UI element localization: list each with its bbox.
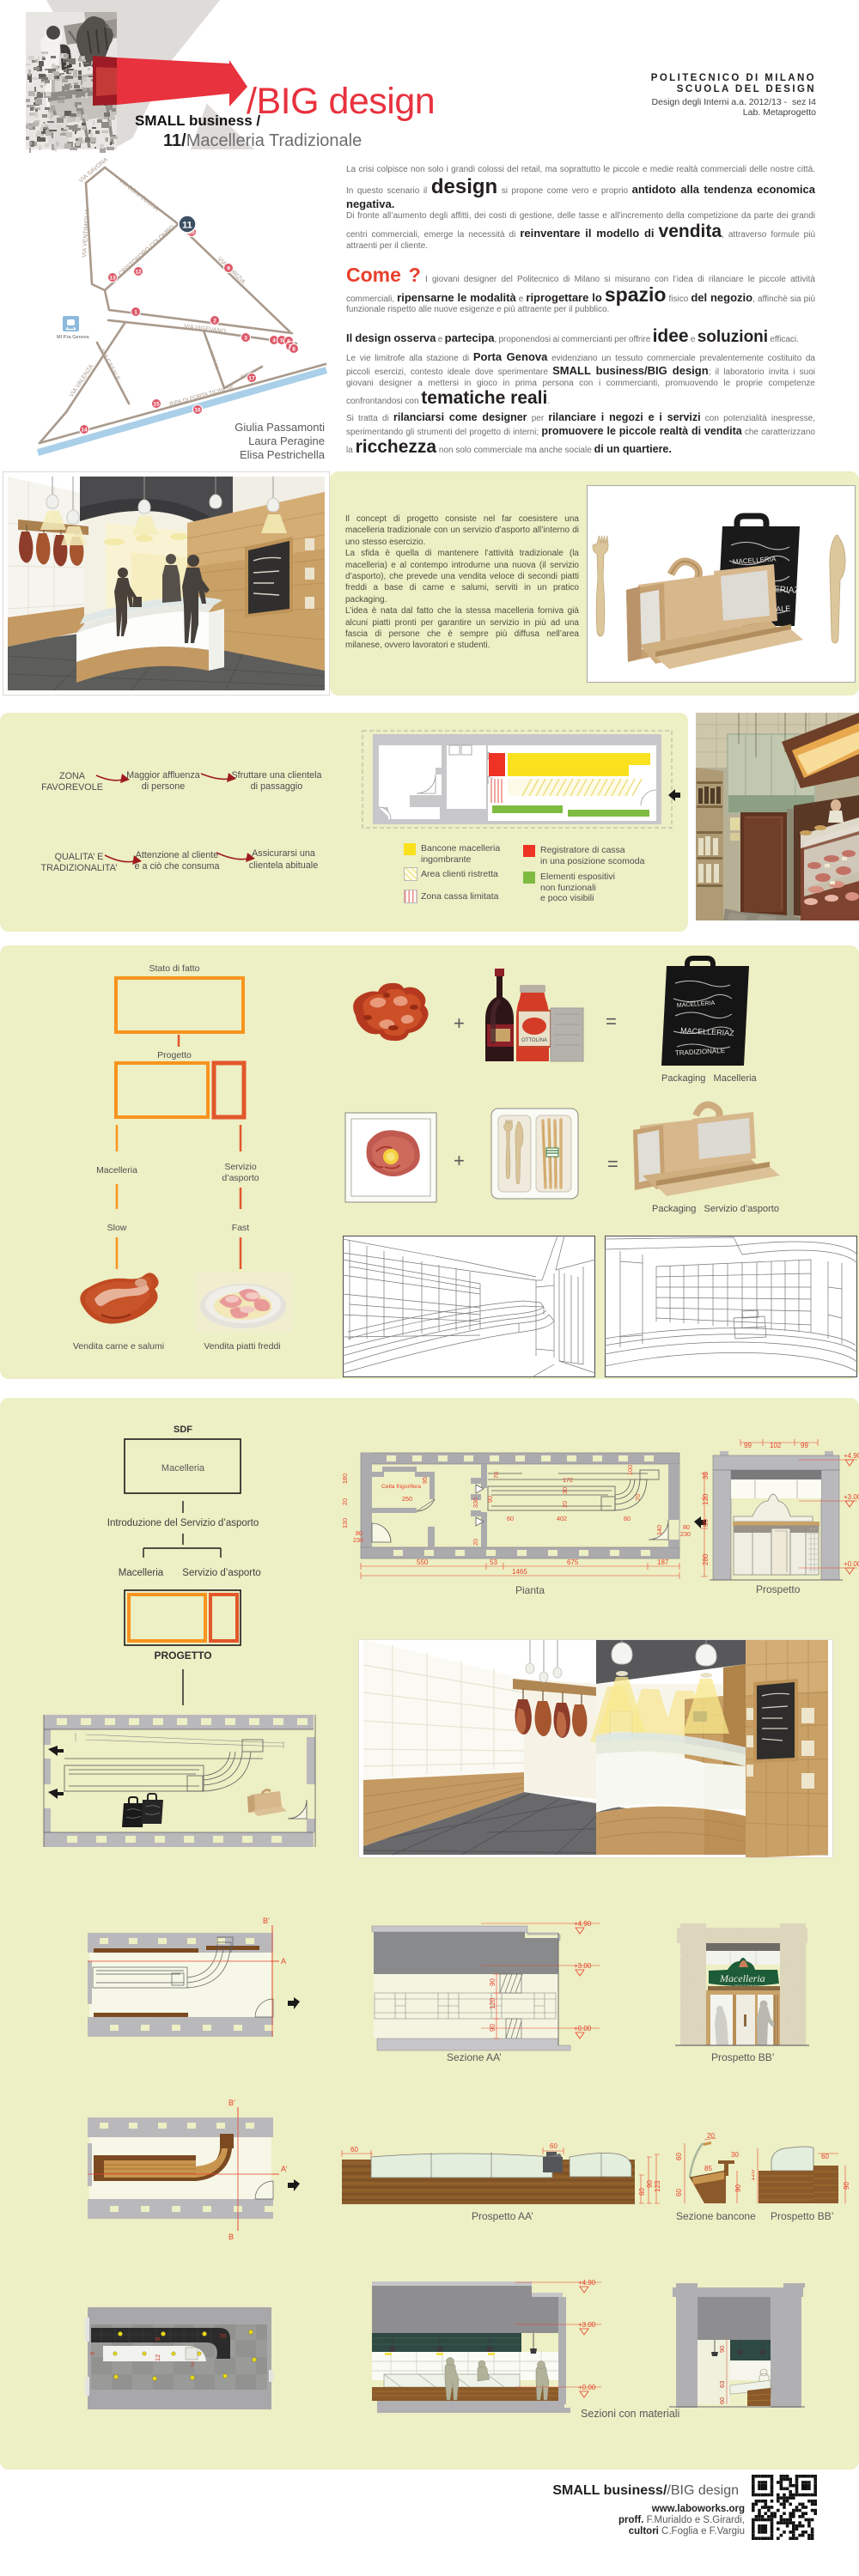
svg-text:PROGETTO: PROGETTO (154, 1649, 211, 1662)
svg-text:di persone: di persone (142, 781, 185, 792)
svg-text:30: 30 (731, 2151, 739, 2159)
svg-text:60: 60 (507, 1515, 514, 1522)
svg-text:100: 100 (626, 1465, 634, 1475)
svg-text:90: 90 (489, 2024, 497, 2032)
svg-text:B: B (228, 2233, 234, 2239)
svg-text:Prospetto: Prospetto (756, 1583, 801, 1595)
svg-text:A: A (281, 1957, 286, 1965)
svg-text:330: 330 (472, 1498, 479, 1508)
svg-text:+4.90: +4.90 (844, 1452, 859, 1460)
svg-text:120: 120 (752, 2169, 756, 2181)
svg-text:2: 2 (213, 319, 216, 325)
svg-text:16: 16 (194, 408, 201, 414)
svg-text:+3.00: +3.00 (578, 2321, 596, 2329)
svg-text:Sfruttare una clientela: Sfruttare una clientela (231, 770, 321, 781)
svg-text:Packaging Servizio d’asporto: Packaging Servizio d’asporto (652, 1204, 779, 1214)
svg-text:120: 120 (489, 1997, 497, 2009)
svg-text:60: 60 (718, 2397, 726, 2404)
svg-text:140: 140 (655, 1525, 663, 1535)
svg-text:=: = (606, 1011, 617, 1032)
svg-text:clientela abituale: clientela abituale (249, 860, 318, 871)
svg-text:120: 120 (702, 1493, 710, 1505)
svg-text:20: 20 (341, 1498, 349, 1505)
svg-text:e a ciò che consuma: e a ciò che consuma (134, 861, 219, 872)
svg-text:Cella frigorifera: Cella frigorifera (381, 1484, 421, 1490)
svg-text:+: + (454, 1150, 465, 1171)
svg-text:90: 90 (646, 2180, 654, 2188)
svg-text:60: 60 (638, 2188, 646, 2196)
svg-text:Assicurarsi una: Assicurarsi una (252, 848, 315, 859)
svg-text:Introduzione del Servizio d’as: Introduzione del Servizio d’asporto (107, 1518, 259, 1528)
svg-text:d’asporto: d’asporto (222, 1173, 259, 1183)
svg-text:di passaggio: di passaggio (251, 781, 303, 792)
svg-text:9: 9 (227, 266, 230, 272)
svg-text:11: 11 (182, 221, 192, 231)
svg-text:Sezione bancone: Sezione bancone (676, 2210, 756, 2222)
svg-text:90: 90 (843, 2182, 850, 2190)
svg-text:Macelleria: Macelleria (96, 1165, 137, 1176)
svg-text:QUALITA’ E: QUALITA’ E (55, 852, 104, 862)
svg-text:MI P.ta Genova: MI P.ta Genova (57, 335, 89, 340)
svg-text:8: 8 (292, 347, 295, 353)
svg-text:172: 172 (563, 1476, 573, 1484)
svg-text:30: 30 (702, 1472, 710, 1479)
svg-text:=: = (607, 1153, 618, 1175)
svg-text:70: 70 (492, 1472, 500, 1479)
svg-text:VIA CONI ZUGNA: VIA CONI ZUGNA (118, 178, 160, 213)
svg-text:+3.00: +3.00 (844, 1493, 859, 1501)
svg-text:Sezione AA’: Sezione AA’ (447, 2051, 502, 2063)
svg-text:280: 280 (702, 1553, 710, 1565)
svg-text:B’: B’ (263, 1917, 270, 1925)
svg-text:2: 2 (191, 2360, 194, 2368)
svg-text:VIA VALENZA: VIA VALENZA (69, 363, 95, 398)
svg-text:12: 12 (135, 270, 142, 276)
svg-text:+: + (454, 1012, 465, 1034)
svg-text:15: 15 (153, 402, 160, 408)
svg-text:102: 102 (770, 1442, 782, 1449)
svg-text:12: 12 (154, 2354, 161, 2361)
svg-text:Servizio: Servizio (224, 1162, 257, 1172)
svg-text:250: 250 (402, 1495, 412, 1503)
svg-text:70: 70 (634, 1494, 642, 1501)
svg-text:60: 60 (624, 1515, 631, 1522)
svg-text:5: 5 (280, 338, 283, 344)
svg-text:17: 17 (248, 376, 255, 382)
svg-text:90: 90 (734, 2184, 742, 2192)
svg-text:+4.90: +4.90 (574, 1920, 592, 1928)
svg-text:Servizio d’asporto: Servizio d’asporto (182, 1568, 260, 1578)
svg-text:70: 70 (219, 2332, 226, 2340)
svg-text:14: 14 (81, 428, 88, 434)
svg-text:Attenzione al cliente: Attenzione al cliente (136, 850, 219, 860)
svg-text:60: 60 (350, 2146, 358, 2154)
svg-text:SDF: SDF (174, 1425, 192, 1435)
svg-text:Macelleria: Macelleria (719, 1972, 765, 1984)
svg-text:FAVOREVOLE: FAVOREVOLE (41, 782, 103, 793)
svg-text:675: 675 (567, 1558, 579, 1566)
svg-text:230: 230 (353, 1536, 363, 1544)
svg-text:187: 187 (657, 1558, 669, 1566)
svg-text:+0.00: +0.00 (844, 1560, 859, 1568)
svg-text:Maggior affluenza: Maggior affluenza (126, 770, 200, 781)
svg-text:3: 3 (244, 336, 247, 342)
svg-text:20: 20 (561, 1501, 569, 1508)
svg-text:B’: B’ (228, 2099, 235, 2107)
svg-text:230: 230 (680, 1530, 691, 1538)
svg-text:180: 180 (341, 1473, 349, 1484)
svg-text:+0.00: +0.00 (578, 2384, 596, 2391)
svg-text:Packaging Macelleria: Packaging Macelleria (661, 1073, 758, 1084)
svg-text:60: 60 (675, 2153, 683, 2160)
svg-text:90: 90 (489, 1978, 497, 1986)
svg-text:13: 13 (109, 276, 116, 282)
svg-text:Stato di fatto: Stato di fatto (149, 963, 200, 974)
svg-text:VIA CASALE: VIA CASALE (99, 349, 120, 382)
svg-text:402: 402 (557, 1515, 567, 1522)
svg-text:4: 4 (272, 338, 276, 344)
svg-text:550: 550 (417, 1558, 429, 1566)
svg-text:99: 99 (801, 1442, 808, 1449)
svg-text:1465: 1465 (512, 1568, 527, 1576)
svg-text:Prospetto AA’: Prospetto AA’ (472, 2210, 533, 2222)
svg-text:Vendita carne e salumi: Vendita carne e salumi (73, 1341, 164, 1352)
svg-text:130: 130 (341, 1518, 349, 1528)
svg-text:123: 123 (654, 2180, 661, 2192)
svg-text:53: 53 (490, 1558, 497, 1566)
svg-text:60: 60 (821, 2153, 829, 2160)
svg-text:30: 30 (561, 1487, 569, 1494)
svg-text:ZONA: ZONA (59, 771, 86, 781)
svg-text:Slow: Slow (107, 1223, 127, 1233)
svg-text:Macelleria: Macelleria (119, 1568, 164, 1578)
svg-text:Pianta: Pianta (515, 1584, 545, 1596)
svg-text:99: 99 (744, 1442, 752, 1449)
svg-text:+3.00: +3.00 (574, 1962, 592, 1970)
svg-text:Prospetto BB’: Prospetto BB’ (711, 2051, 774, 2063)
svg-text:95: 95 (421, 1477, 429, 1484)
svg-text:Fast: Fast (232, 1223, 250, 1233)
svg-text:+4.90: +4.90 (578, 2279, 596, 2287)
svg-text:90: 90 (486, 1496, 494, 1503)
svg-text:OTTOLINA: OTTOLINA (521, 1038, 547, 1043)
svg-text:VIA SAVONA: VIA SAVONA (78, 156, 110, 184)
svg-text:Progetto: Progetto (157, 1050, 192, 1060)
svg-text:9: 9 (88, 2352, 96, 2355)
svg-text:8: 8 (154, 2337, 161, 2341)
svg-text:TRADIZIONALITA’: TRADIZIONALITA’ (41, 863, 118, 873)
svg-text:Prospetto BB’: Prospetto BB’ (771, 2210, 833, 2222)
svg-text:85: 85 (704, 2165, 712, 2172)
svg-text:Macelleria: Macelleria (161, 1463, 205, 1473)
svg-text:60: 60 (702, 1519, 710, 1527)
svg-text:A’: A’ (281, 2165, 287, 2173)
svg-text:60: 60 (675, 2189, 683, 2196)
svg-text:90: 90 (718, 2346, 726, 2353)
svg-text:Vendita piatti freddi: Vendita piatti freddi (204, 1341, 280, 1352)
svg-text:VIA CORSICO: VIA CORSICO (205, 343, 219, 371)
svg-text:VIA CRISTOFORO COLOMBO: VIA CRISTOFORO COLOMBO (110, 224, 176, 285)
svg-text:1: 1 (134, 310, 137, 316)
svg-text:60: 60 (550, 2142, 557, 2150)
svg-text:63: 63 (718, 2381, 726, 2388)
svg-text:+0.00: +0.00 (574, 2025, 592, 2032)
svg-text:20: 20 (472, 1539, 479, 1546)
